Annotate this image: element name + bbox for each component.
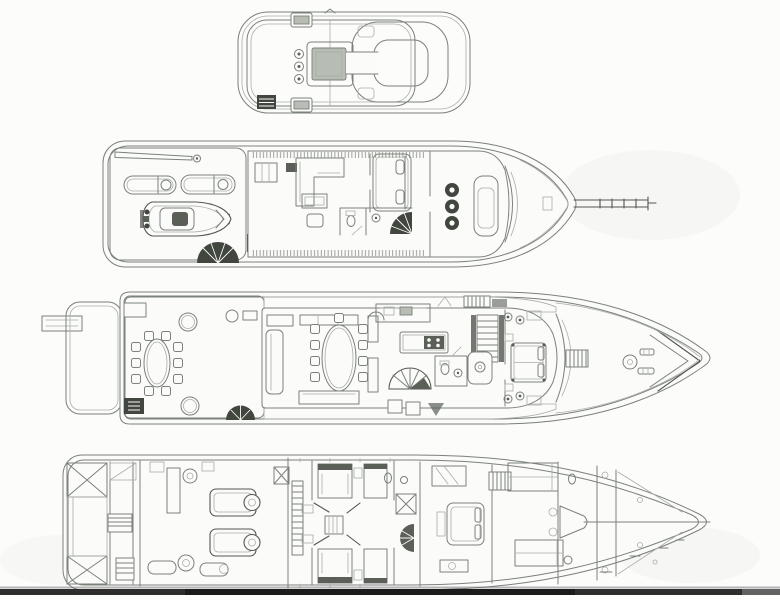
foredeck-steps [566,350,588,367]
deck-hatch-bottom [291,98,312,112]
deck-hatch-top [291,13,312,27]
cooktop [424,336,444,349]
superstructure-outline [262,308,557,408]
helm-chairs [445,183,459,230]
passerelle [42,316,82,331]
scan-band [0,587,780,596]
dining-table [322,325,356,391]
sun-lounger [181,175,235,194]
sun-lounger [124,176,176,194]
alfresco-table [144,339,170,387]
companionway-hatch [257,95,276,109]
tender [140,202,231,236]
scanned-plan-page [0,0,780,600]
side-deck-hatching-bottom [252,250,424,256]
pantry-cabinet [468,352,492,384]
main-deck-view [42,292,710,424]
deck-plan-drawing [0,0,780,600]
